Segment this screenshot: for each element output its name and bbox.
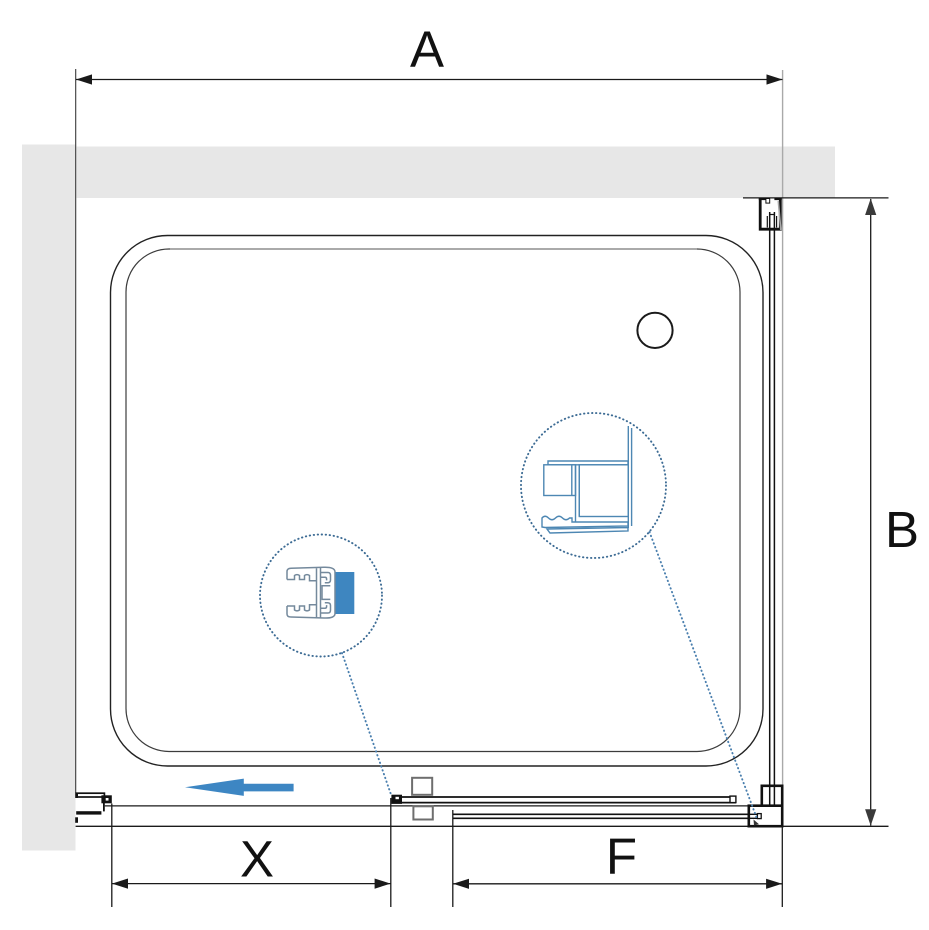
svg-text:B: B (885, 501, 919, 558)
svg-text:A: A (410, 21, 444, 78)
svg-text:F: F (606, 828, 637, 885)
svg-text:X: X (240, 831, 274, 888)
